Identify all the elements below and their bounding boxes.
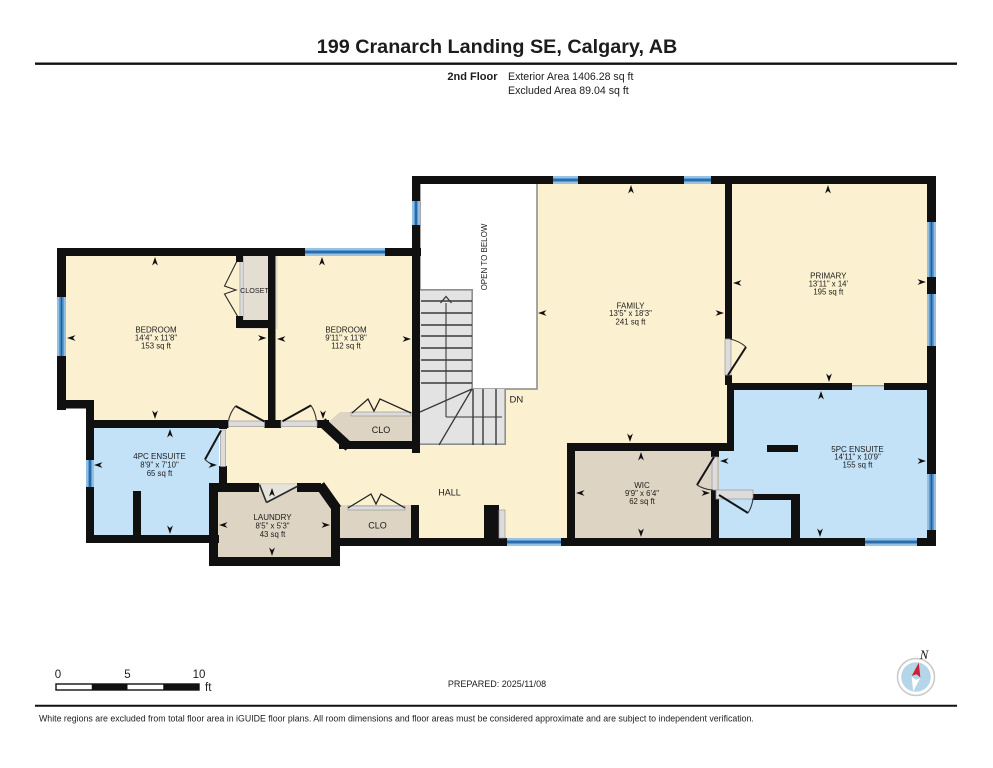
svg-text:DN: DN — [510, 395, 524, 406]
svg-text:8'5" x 5'3": 8'5" x 5'3" — [255, 521, 289, 530]
svg-text:ft: ft — [205, 682, 212, 694]
svg-text:White regions are excluded fro: White regions are excluded from total fl… — [39, 714, 754, 724]
svg-text:OPEN TO BELOW: OPEN TO BELOW — [480, 223, 489, 290]
svg-text:CLO: CLO — [372, 425, 391, 435]
svg-text:HALL: HALL — [438, 488, 461, 498]
svg-text:CLOSET: CLOSET — [240, 286, 269, 295]
svg-text:2nd Floor: 2nd Floor — [447, 71, 498, 83]
svg-text:195 sq ft: 195 sq ft — [813, 288, 844, 297]
svg-text:5: 5 — [124, 669, 130, 681]
svg-text:Exterior Area 1406.28 sq ft: Exterior Area 1406.28 sq ft — [508, 71, 633, 83]
svg-text:43 sq ft: 43 sq ft — [260, 530, 286, 539]
svg-text:0: 0 — [55, 669, 61, 681]
svg-text:CLO: CLO — [368, 521, 387, 531]
svg-text:65 sq ft: 65 sq ft — [147, 469, 173, 478]
svg-text:112 sq ft: 112 sq ft — [331, 342, 361, 351]
svg-text:Excluded Area 89.04 sq ft: Excluded Area 89.04 sq ft — [508, 85, 629, 97]
svg-text:N: N — [919, 648, 929, 662]
svg-text:PREPARED: 2025/11/08: PREPARED: 2025/11/08 — [448, 679, 546, 689]
svg-text:241 sq ft: 241 sq ft — [616, 317, 647, 326]
svg-text:10: 10 — [193, 669, 206, 681]
svg-text:199 Cranarch Landing SE, Calga: 199 Cranarch Landing SE, Calgary, AB — [317, 36, 678, 58]
svg-text:153 sq ft: 153 sq ft — [141, 342, 172, 351]
svg-text:62 sq ft: 62 sq ft — [629, 497, 655, 506]
svg-text:155 sq ft: 155 sq ft — [843, 461, 874, 470]
